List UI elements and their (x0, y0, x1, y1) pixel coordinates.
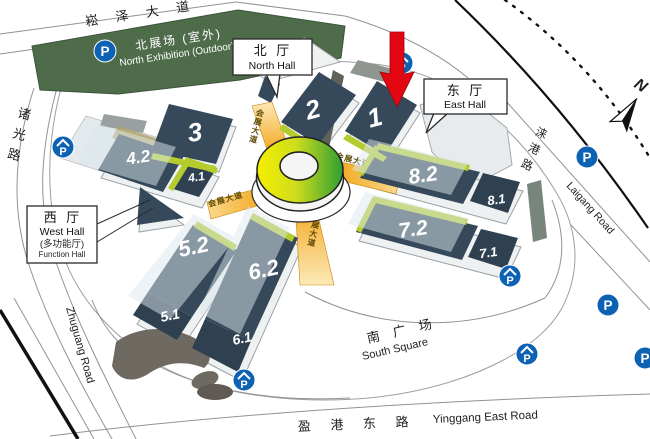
north-hall-label-cn: 北 厅 (254, 43, 293, 58)
south-canopy (197, 384, 233, 400)
hall-8-1-label: 8.1 (486, 191, 506, 208)
svg-text:P: P (240, 379, 247, 391)
svg-text:P: P (603, 298, 612, 313)
venue-map: 北展场 (室外) North Exhibition (Outdoor) (0, 0, 650, 439)
west-hall-label-en: West Hall (40, 226, 85, 238)
hall-4-2-label: 4.2 (124, 146, 152, 168)
west-hall-label-cn: 西 厅 (44, 210, 83, 225)
parking-icon: P (94, 40, 116, 62)
covered-parking-icon: P (233, 369, 255, 391)
compass-label: N (631, 76, 650, 97)
west-hall-sub-label-en: Function Hall (39, 250, 86, 259)
hall-4-1-label: 4.1 (186, 169, 206, 185)
east-hall-label-en: East Hall (444, 99, 486, 111)
hall-7-1-label: 7.1 (478, 244, 498, 261)
east-hall-label-cn: 东 厅 (447, 83, 486, 98)
yinggang-road-label-en: Yinggang East Road (433, 409, 539, 426)
compass: N (610, 75, 650, 132)
svg-text:P: P (582, 150, 591, 165)
zhuguang-road-label-en: Zhuguang Road (63, 306, 96, 385)
hall-7-2-label: 7.2 (397, 216, 429, 243)
parking-icon: P (597, 294, 619, 316)
svg-text:P: P (100, 44, 109, 59)
parking-icon: P (576, 146, 598, 168)
svg-text:P: P (506, 275, 513, 287)
west-hall-sub-label-cn: (多功能厅) (40, 238, 84, 250)
covered-parking-icon: P (516, 343, 538, 365)
svg-text:P: P (640, 351, 649, 366)
zhuguang-road-label-cn: 诸光路 (2, 105, 32, 170)
north-hall-label-en: North Hall (249, 60, 296, 72)
corner-heavy-line (0, 310, 78, 439)
hall-8-2-label: 8.2 (407, 162, 439, 189)
svg-text:P: P (59, 146, 66, 158)
covered-parking-icon: P (499, 265, 521, 287)
svg-text:P: P (523, 353, 530, 365)
yinggang-road-label-cn: 盈 港 东 路 (297, 414, 416, 434)
covered-parking-icon: P (52, 136, 74, 158)
parking-icon: P (634, 347, 650, 369)
